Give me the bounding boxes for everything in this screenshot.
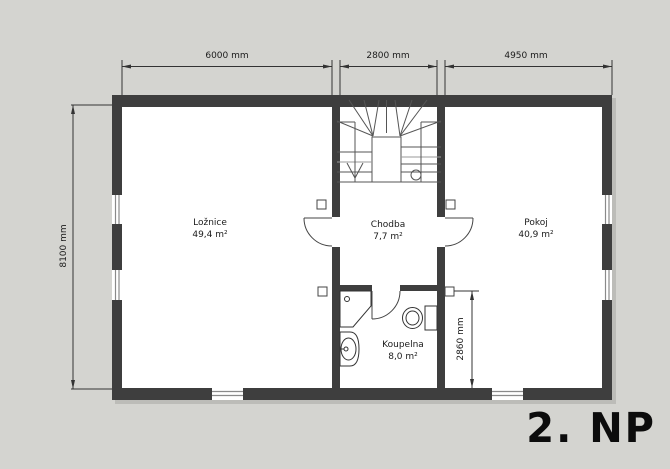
- room-name: Koupelna: [382, 340, 424, 350]
- marker-square: [318, 287, 327, 296]
- room-label-koupelna: Koupelna 8,0 m²: [333, 339, 473, 363]
- room-area: 8,0 m²: [388, 352, 418, 362]
- window-left-upper: [112, 195, 122, 224]
- wall-koupelna-north-left: [340, 285, 372, 291]
- window-bottom-right: [492, 388, 523, 400]
- room-name: Pokoj: [524, 218, 548, 228]
- dimension-label-2800: 2800 mm: [328, 50, 448, 62]
- room-label-loznice: Ložnice 49,4 m²: [140, 217, 280, 241]
- dimension-label-4950: 4950 mm: [466, 50, 586, 62]
- marker-square: [446, 200, 455, 209]
- room-area: 7,7 m²: [373, 232, 403, 242]
- wall-koupelna-north-right: [400, 285, 437, 291]
- room-area: 49,4 m²: [192, 230, 227, 240]
- room-label-pokoj: Pokoj 40,9 m²: [466, 217, 606, 241]
- marker-square: [317, 200, 326, 209]
- window-left-lower: [112, 270, 122, 300]
- room-name: Ložnice: [193, 218, 227, 228]
- window-right-lower: [602, 270, 612, 300]
- room-label-chodba: Chodba 7,7 m²: [318, 219, 458, 243]
- dimension-label-6000: 6000 mm: [167, 50, 287, 62]
- dimension-label-8100: 8100 mm: [58, 201, 70, 291]
- room-name: Chodba: [371, 220, 405, 230]
- window-bottom-left: [212, 388, 243, 400]
- floor-title: 2. NP: [526, 405, 656, 452]
- floor-plan-canvas: 6000 mm 2800 mm 4950 mm 8100 mm 2860 mm …: [0, 0, 670, 469]
- room-area: 40,9 m²: [518, 230, 553, 240]
- marker-square: [445, 287, 454, 296]
